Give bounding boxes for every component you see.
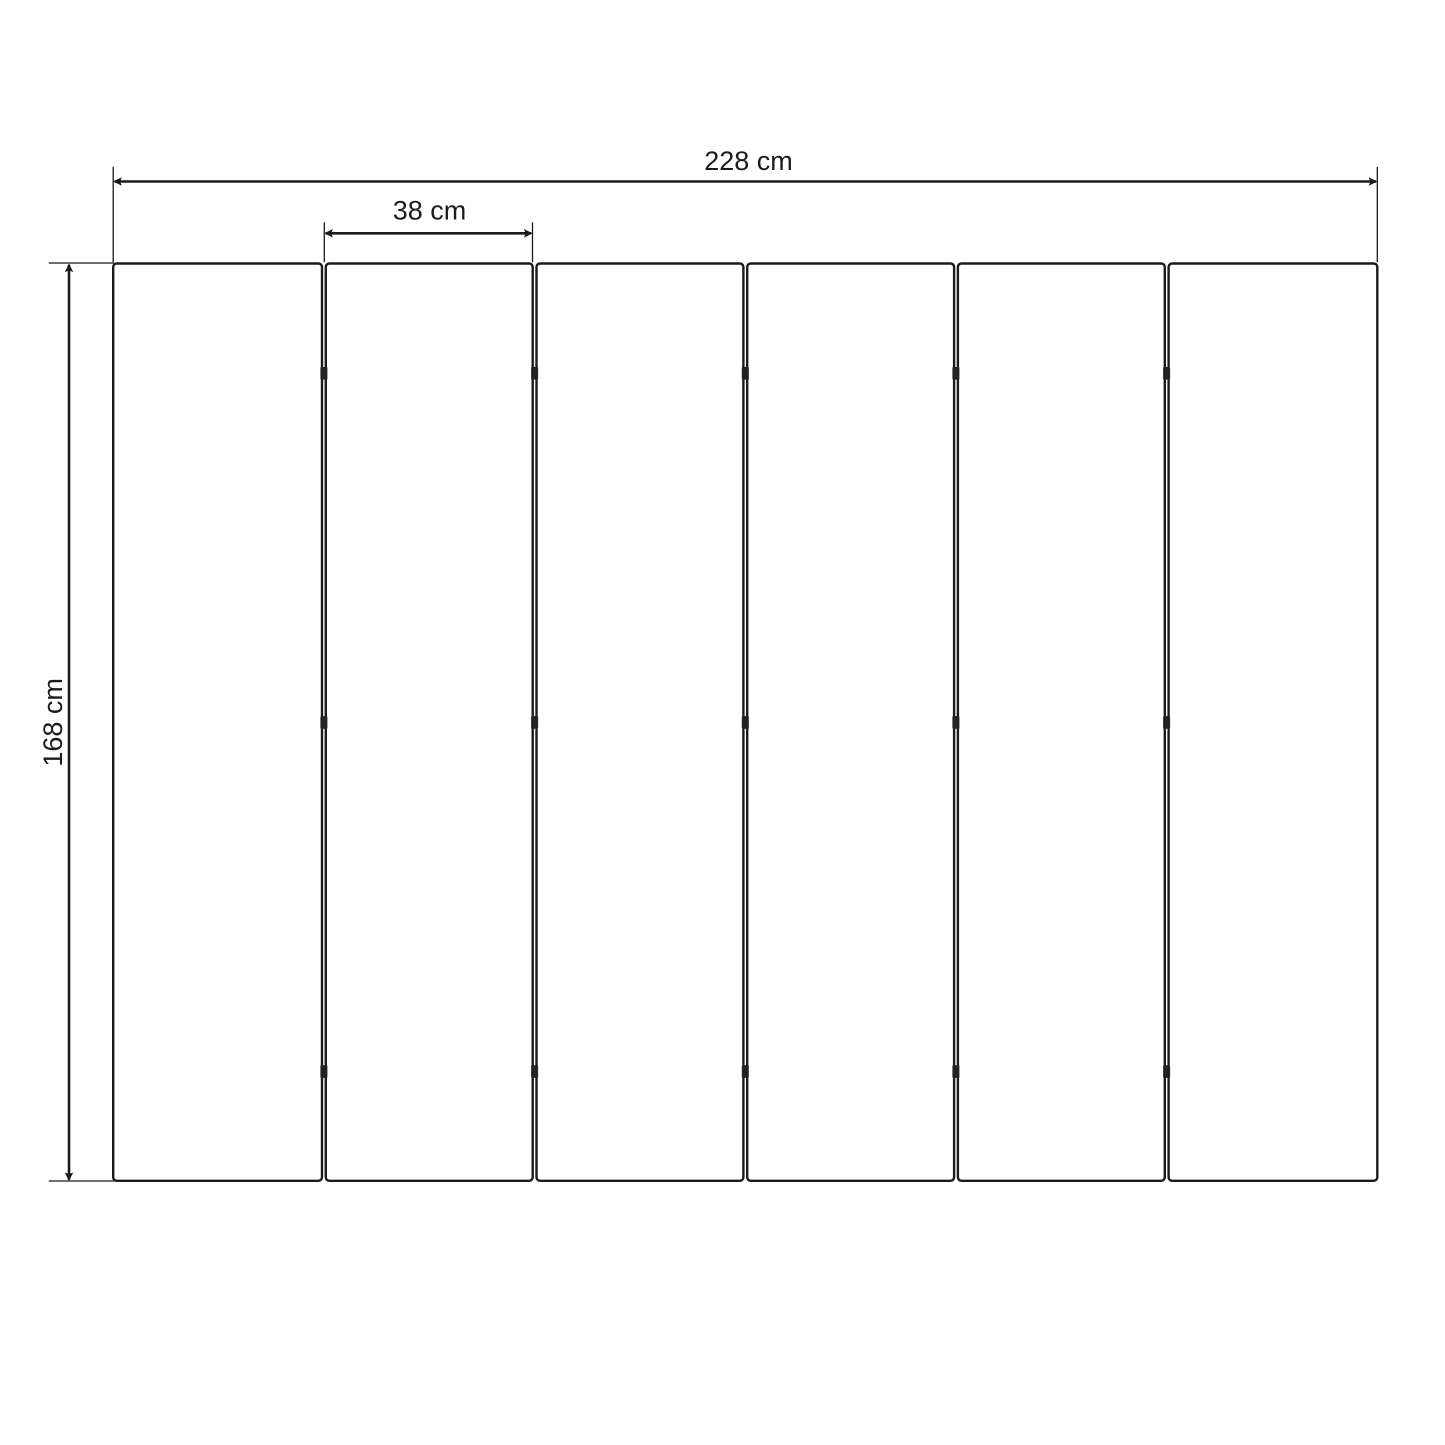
svg-text:228 cm: 228 cm [704,146,793,176]
svg-text:38 cm: 38 cm [393,196,467,226]
svg-text:168 cm: 168 cm [38,678,68,767]
